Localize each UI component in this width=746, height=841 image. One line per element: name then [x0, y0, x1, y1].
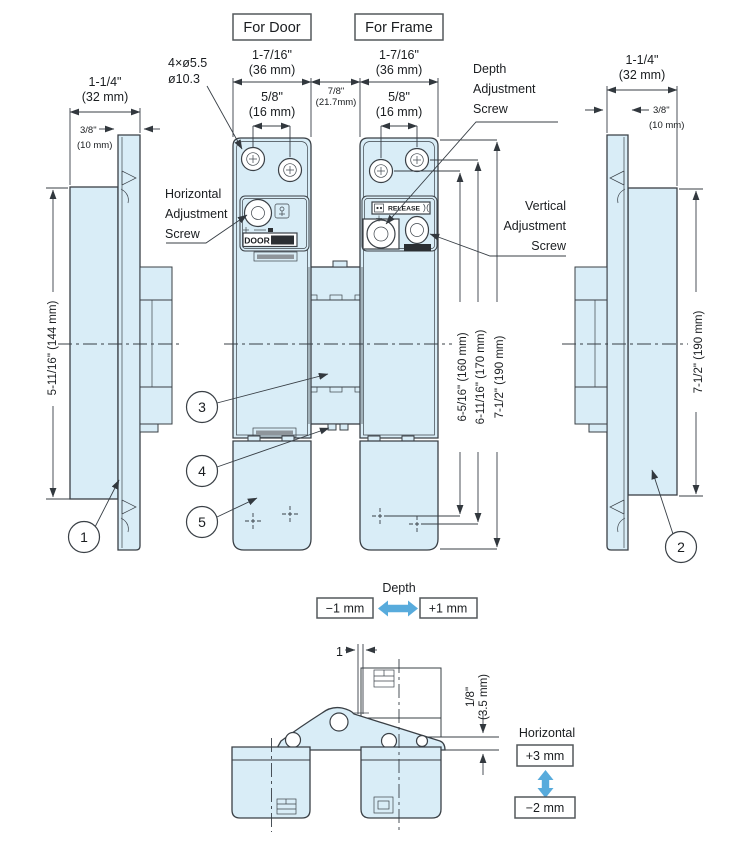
horizontal-plus-value: +3 mm — [526, 749, 565, 763]
arm-stack-side — [575, 267, 607, 432]
frame-body-front: RELEASE — [360, 138, 438, 438]
release-marking-text: RELEASE — [388, 206, 421, 213]
callout-number: 1 — [80, 529, 88, 545]
depth-minus-value: −1 mm — [326, 602, 365, 616]
holes-label: ø10.3 — [168, 72, 200, 86]
door-adjustment-plate: DOOR — [240, 196, 309, 251]
door-block-left-top-view — [232, 747, 310, 818]
label-line: Adjustment — [473, 82, 536, 96]
dim-text: (16 mm) — [376, 105, 423, 119]
holes-label: 4×ø5.5 — [168, 56, 207, 70]
dim-text: 1-7/16" — [379, 48, 419, 62]
dim-text: (10 mm) — [77, 140, 112, 151]
dim-text: (32 mm) — [619, 68, 666, 82]
door-marking-plate: DOOR — [243, 233, 297, 247]
dim-text: 1-7/16" — [252, 48, 292, 62]
label-line: Screw — [473, 102, 509, 116]
for-door-label: For Door — [243, 20, 300, 36]
label-line: Vertical — [525, 199, 566, 213]
up-down-arrow-icon — [538, 770, 554, 798]
mounting-screw — [370, 160, 393, 183]
door-block-right-top-view — [361, 747, 441, 818]
dim-text: (21.7mm) — [316, 97, 357, 108]
horizontal-adjustment-legend: Horizontal +3 mm −2 mm — [515, 726, 575, 818]
right-side-view — [575, 135, 677, 550]
frame-paddle — [360, 436, 438, 550]
frame-adjustment-plate: RELEASE — [362, 196, 437, 252]
label-line: Adjustment — [503, 219, 566, 233]
header-for-frame: For Frame — [355, 14, 443, 40]
dim-left-height-144mm: 5-11/16" (144 mm) — [46, 188, 71, 499]
door-paddle — [233, 436, 311, 550]
depth-plus-value: +1 mm — [429, 602, 468, 616]
horizontal-minus-value: −2 mm — [526, 801, 565, 815]
horizontal-title: Horizontal — [519, 726, 575, 740]
dim-right-height-190mm: 7-1/2" (190 mm) — [679, 189, 705, 496]
callout-number: 5 — [198, 514, 206, 530]
dim-gap-7-8: 7/8" (21.7mm) — [311, 82, 360, 108]
frame-panel-section — [628, 188, 677, 495]
left-side-view — [70, 135, 172, 550]
callout-number: 3 — [198, 399, 206, 415]
label-line: Depth — [473, 62, 506, 76]
dim-text: (10 mm) — [649, 120, 684, 131]
callout-number: 4 — [198, 463, 206, 479]
frame-marking-blob — [404, 244, 431, 252]
hinge-technical-drawing: For Door For Frame — [0, 0, 746, 836]
arm-stack-side — [140, 267, 172, 432]
dim-height-190mm-front: 7-1/2" (190 mm) — [440, 140, 506, 549]
drawing-canvas: For Door For Frame — [0, 0, 746, 836]
door-marking-text: DOOR — [244, 236, 270, 246]
dim-text: 3/8" — [653, 105, 670, 116]
label-line: Adjustment — [165, 207, 228, 221]
dim-text: (16 mm) — [249, 105, 296, 119]
left-right-arrow-icon — [378, 601, 418, 617]
offset-1-text: 1 — [336, 645, 343, 659]
mounting-screw — [242, 148, 265, 171]
dim-text: 5/8" — [388, 90, 410, 104]
vertical-adjustment-screw — [406, 217, 429, 244]
dim-text: 6-11/16" (170 mm) — [475, 330, 487, 425]
dim-text: 3/8" — [80, 125, 97, 136]
dim-text: 6-5/16" (160 mm) — [457, 332, 469, 421]
release-marking-plate: RELEASE — [372, 202, 430, 214]
door-panel-section — [70, 187, 118, 499]
mounting-screw — [279, 159, 302, 182]
dim-text: 5/8" — [261, 90, 283, 104]
label-line: Horizontal — [165, 187, 221, 201]
top-view-section: 1 1/8" (3.5 mm) — [232, 644, 499, 832]
dim-text: 7/8" — [328, 86, 345, 97]
depth-title: Depth — [382, 581, 415, 595]
horizontal-adjustment-screw — [245, 200, 272, 227]
depth-adjustment-legend: Depth −1 mm +1 mm — [317, 581, 477, 618]
arm-lower-tab — [340, 424, 348, 430]
dim-text: (36 mm) — [249, 63, 296, 77]
header-for-door: For Door — [233, 14, 311, 40]
callout-number: 2 — [677, 539, 685, 555]
dim-text: 7-1/2" (190 mm) — [693, 310, 705, 393]
label-line: Screw — [165, 227, 201, 241]
reveal-dim-text: 1/8" — [465, 687, 477, 707]
label-line: Screw — [531, 239, 567, 253]
dim-text: (36 mm) — [376, 63, 423, 77]
dim-text: (32 mm) — [82, 90, 129, 104]
reveal-dim-mm-text: (3.5 mm) — [478, 674, 490, 720]
dim-text: 1-1/4" — [89, 75, 122, 89]
vertical-adjustment-callout: Vertical Adjustment Screw — [430, 199, 567, 256]
arm-lower-tab — [328, 424, 336, 430]
mounting-screw — [406, 149, 429, 172]
door-plate-side — [118, 135, 140, 550]
door-body-front: DOOR — [233, 138, 311, 438]
holes-callout: 4×ø5.5 ø10.3 — [168, 56, 242, 149]
dim-text: 1-1/4" — [626, 53, 659, 67]
dim-right-lip-10mm: 3/8" (10 mm) — [585, 105, 684, 131]
dim-text: 7-1/2" (190 mm) — [494, 335, 506, 418]
frame-plate-side — [607, 135, 628, 550]
dim-text: 5-11/16" (144 mm) — [47, 301, 59, 396]
for-frame-label: For Frame — [365, 20, 433, 36]
